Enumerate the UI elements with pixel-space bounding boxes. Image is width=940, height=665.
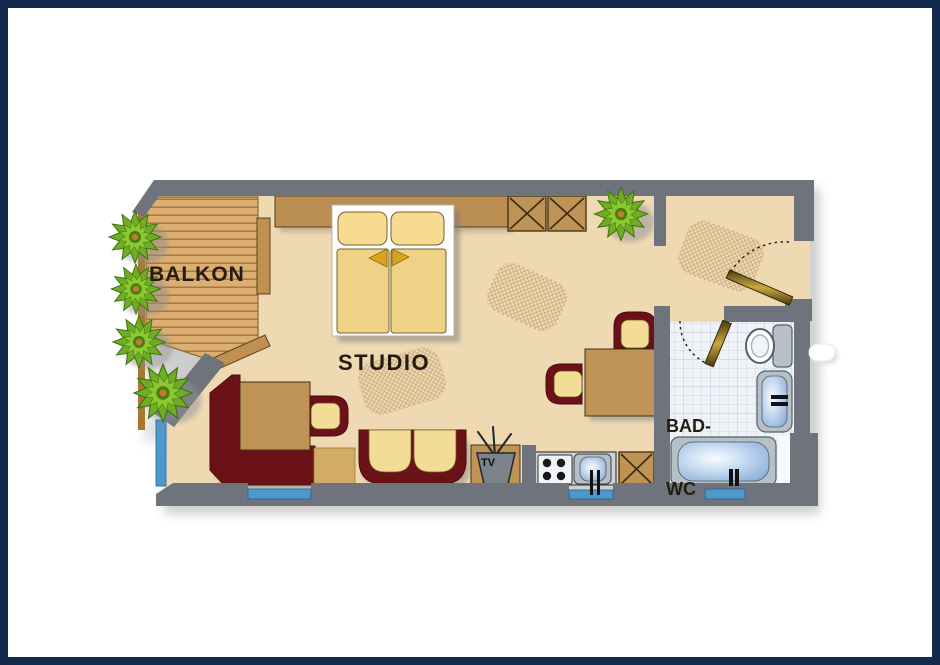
bathroom-top-wall: [724, 306, 794, 322]
dining-table: [585, 349, 656, 416]
kitchen-tap: [590, 470, 593, 495]
tv-label: TV: [464, 457, 512, 469]
corner-table: [240, 382, 310, 450]
floorplan-drawing: [8, 8, 932, 657]
tub-tap: [729, 469, 733, 486]
kitchenette: [535, 452, 654, 486]
bathroom-label-line2: WC: [666, 479, 711, 500]
bottom-wall-mid: [613, 483, 671, 506]
burner: [557, 459, 565, 467]
bathroom-sink: [757, 371, 792, 432]
entry-doorway-floor: [794, 241, 810, 300]
bottom-wall-main: [311, 483, 569, 506]
tub-tap: [735, 469, 739, 486]
pillow: [391, 212, 444, 245]
bathroom-label: BAD- WC: [666, 374, 711, 542]
balcony-label: BALKON: [149, 263, 245, 287]
wall-pier: [522, 445, 536, 485]
right-wall-upper: [794, 180, 814, 241]
sink-tap: [771, 402, 788, 406]
hall-partition-stub: [654, 196, 666, 246]
pillow: [338, 212, 387, 245]
stove: [538, 455, 572, 484]
left-window: [156, 420, 166, 486]
burner: [543, 459, 551, 467]
side-table: [314, 448, 355, 484]
bathroom-window: [705, 489, 745, 499]
burner: [543, 472, 551, 480]
sofa: [359, 430, 470, 487]
balcony-bench: [257, 218, 270, 294]
sink-tap: [771, 395, 788, 399]
burner: [557, 472, 565, 480]
bottom-left-wall: [156, 483, 248, 506]
top-wall: [154, 180, 814, 196]
double-bed: [332, 205, 460, 342]
bathroom-label-line1: BAD-: [666, 416, 711, 437]
floorplan-page: BALKON STUDIO BAD- WC TV: [0, 0, 940, 665]
kitchen-tap: [597, 470, 600, 495]
sofa-cushion: [414, 430, 456, 472]
studio-label: STUDIO: [338, 350, 430, 376]
bottom-window: [248, 489, 311, 499]
sofa-cushion: [369, 430, 411, 472]
